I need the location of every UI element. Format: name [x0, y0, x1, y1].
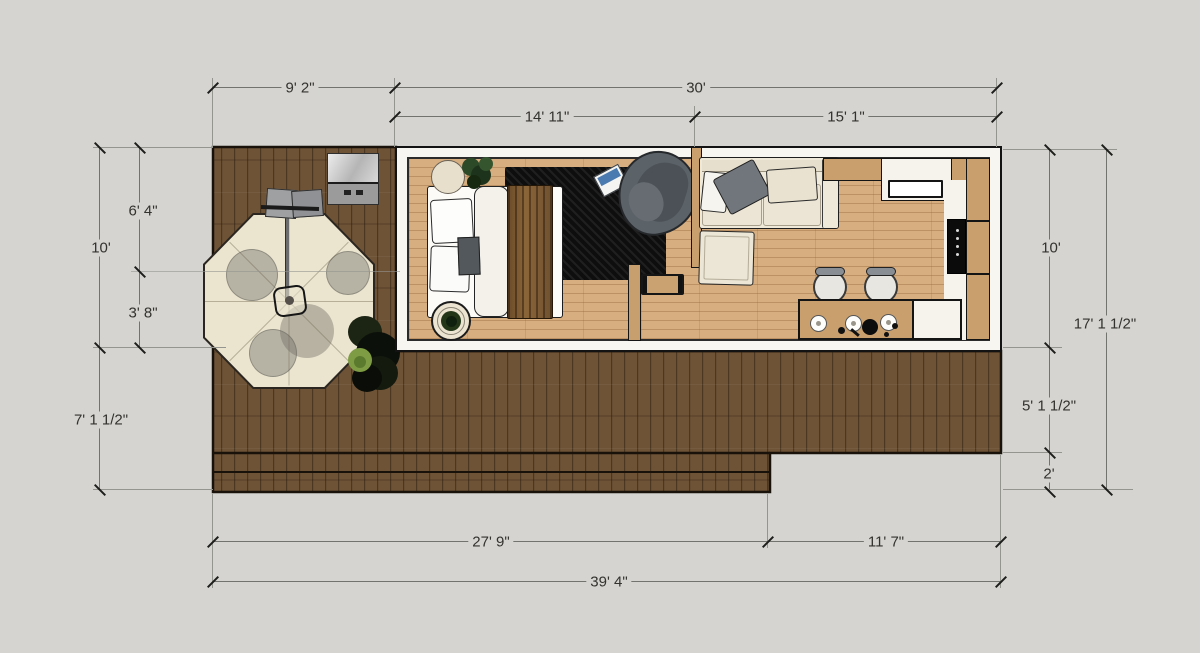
dim-label-left-lower: 3' 8" — [124, 305, 161, 322]
dim-label-left-house-depth: 10' — [87, 240, 115, 257]
tray-plant — [446, 316, 457, 327]
extension-line — [93, 347, 226, 348]
bar-stool-back — [815, 267, 845, 276]
dim-label-bottom-deck-width: 27' 9" — [468, 534, 513, 551]
dimension-line-top-outer — [213, 87, 997, 88]
extension-line — [93, 147, 213, 148]
umbrella-base-hub — [285, 296, 294, 305]
extension-line — [694, 106, 695, 147]
bed-gray-throw — [457, 237, 480, 276]
bedroom-plant — [467, 175, 481, 189]
bench-leg — [678, 276, 682, 293]
dim-label-right-total-depth: 17' 1 1/2" — [1070, 316, 1140, 333]
extension-line — [1003, 452, 1062, 453]
dimension-line-right-inner — [1049, 150, 1050, 492]
extension-line — [93, 489, 213, 490]
dim-label-total-width: 39' 4" — [586, 574, 631, 591]
dim-label-steps-depth: 2' — [1039, 466, 1058, 483]
extension-line — [1003, 149, 1117, 150]
ottoman — [698, 230, 754, 285]
sofa-pillow-cream — [766, 166, 818, 203]
oven — [947, 219, 966, 274]
cabinet-divider — [967, 220, 989, 222]
kettle — [862, 319, 878, 335]
plate-center — [816, 321, 821, 326]
cabinet-divider — [967, 273, 989, 275]
dim-label-bottom-right-width: 11' 7" — [864, 534, 908, 551]
bar-stool-back — [866, 267, 896, 276]
patio-chair — [226, 249, 278, 301]
grill-handle — [356, 190, 363, 195]
dim-label-living-width: 15' 1" — [823, 109, 868, 126]
bench — [641, 274, 684, 295]
dim-label-left-deck-depth: 7' 1 1/2" — [70, 412, 132, 429]
folded-umbrella-piece — [291, 189, 324, 218]
bench-leg — [643, 276, 647, 293]
grill-handle — [344, 190, 351, 195]
oven-knob — [956, 229, 959, 232]
patio-chair — [326, 251, 370, 295]
deck-plant-leaves — [354, 356, 366, 368]
oven-knob — [956, 245, 959, 248]
dim-label-bedroom-width: 14' 11" — [521, 109, 574, 126]
oven-knob — [956, 237, 959, 240]
kitchen-item — [892, 323, 898, 329]
bed-throw-blanket — [507, 185, 553, 319]
bedside-table — [431, 160, 465, 194]
grill — [327, 153, 379, 205]
bedroom-plant — [479, 157, 493, 171]
dim-label-deck-width-top: 9' 2" — [281, 80, 318, 97]
kitchen-tall-cabinets — [966, 158, 990, 340]
kitchen-island-counter — [914, 299, 962, 340]
extension-line — [1003, 347, 1062, 348]
dim-label-left-upper: 6' 4" — [124, 203, 161, 220]
ottoman-seam — [703, 235, 749, 280]
dim-label-house-width: 30' — [682, 80, 710, 97]
kitchen-item — [838, 327, 845, 334]
kitchen-sink — [888, 180, 943, 198]
extension-line — [1003, 489, 1133, 490]
kitchen-item — [884, 332, 889, 337]
oven-knob — [956, 253, 959, 256]
dim-label-right-deck-depth: 5' 1 1/2" — [1018, 398, 1080, 415]
floor-plan-canvas: 9' 2" 30' 14' 11" 15' 1" 6' 4" 10' 3' 8"… — [0, 0, 1200, 653]
dimension-line-left-outer — [99, 148, 100, 490]
extension-line — [1000, 455, 1001, 588]
divider-wall — [628, 264, 641, 341]
dim-label-right-house-depth: 10' — [1037, 240, 1065, 257]
extension-line — [131, 271, 400, 272]
plate-center — [851, 321, 856, 326]
grill-lid — [328, 154, 378, 184]
plate-center — [886, 320, 891, 325]
